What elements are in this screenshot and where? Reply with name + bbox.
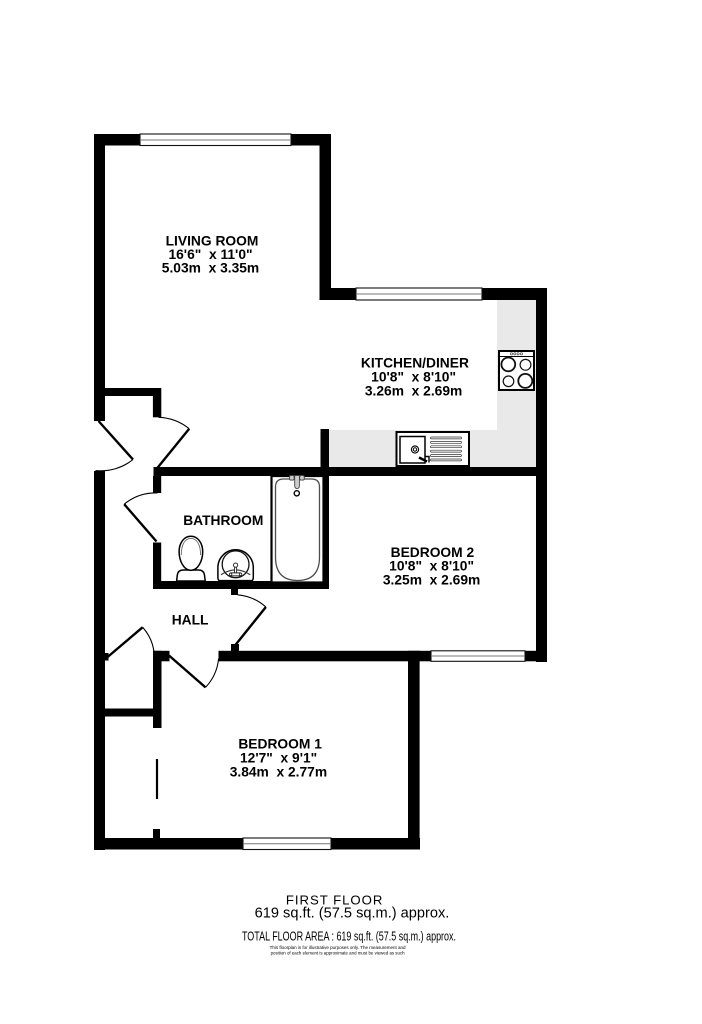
svg-text:619 sq.ft. (57.5 sq.m.) approx: 619 sq.ft. (57.5 sq.m.) approx. (255, 906, 450, 922)
svg-text:BEDROOM 2: BEDROOM 2 (391, 545, 475, 560)
svg-text:TOTAL FLOOR AREA : 619 sq.ft.: TOTAL FLOOR AREA : 619 sq.ft. (57.5 sq.m… (242, 930, 456, 944)
svg-text:position of each element is ap: position of each element is approximate … (271, 951, 406, 956)
svg-text:This floorplan is for illustra: This floorplan is for illustrative purpo… (270, 945, 406, 950)
svg-text:3.84m x 2.77m: 3.84m x 2.77m (230, 764, 327, 779)
svg-text:10'8" x 8'10": 10'8" x 8'10" (371, 369, 456, 384)
svg-text:BATHROOM: BATHROOM (183, 513, 263, 528)
svg-text:12'7" x 9'1": 12'7" x 9'1" (240, 751, 317, 766)
svg-text:3.26m x 2.69m: 3.26m x 2.69m (365, 384, 462, 399)
svg-text:10'8" x 8'10": 10'8" x 8'10" (389, 559, 474, 574)
svg-text:HALL: HALL (172, 613, 209, 628)
svg-text:3.25m x 2.69m: 3.25m x 2.69m (383, 573, 480, 588)
svg-text:BEDROOM 1: BEDROOM 1 (238, 737, 322, 752)
svg-text:5.03m x 3.35m: 5.03m x 3.35m (162, 260, 259, 275)
